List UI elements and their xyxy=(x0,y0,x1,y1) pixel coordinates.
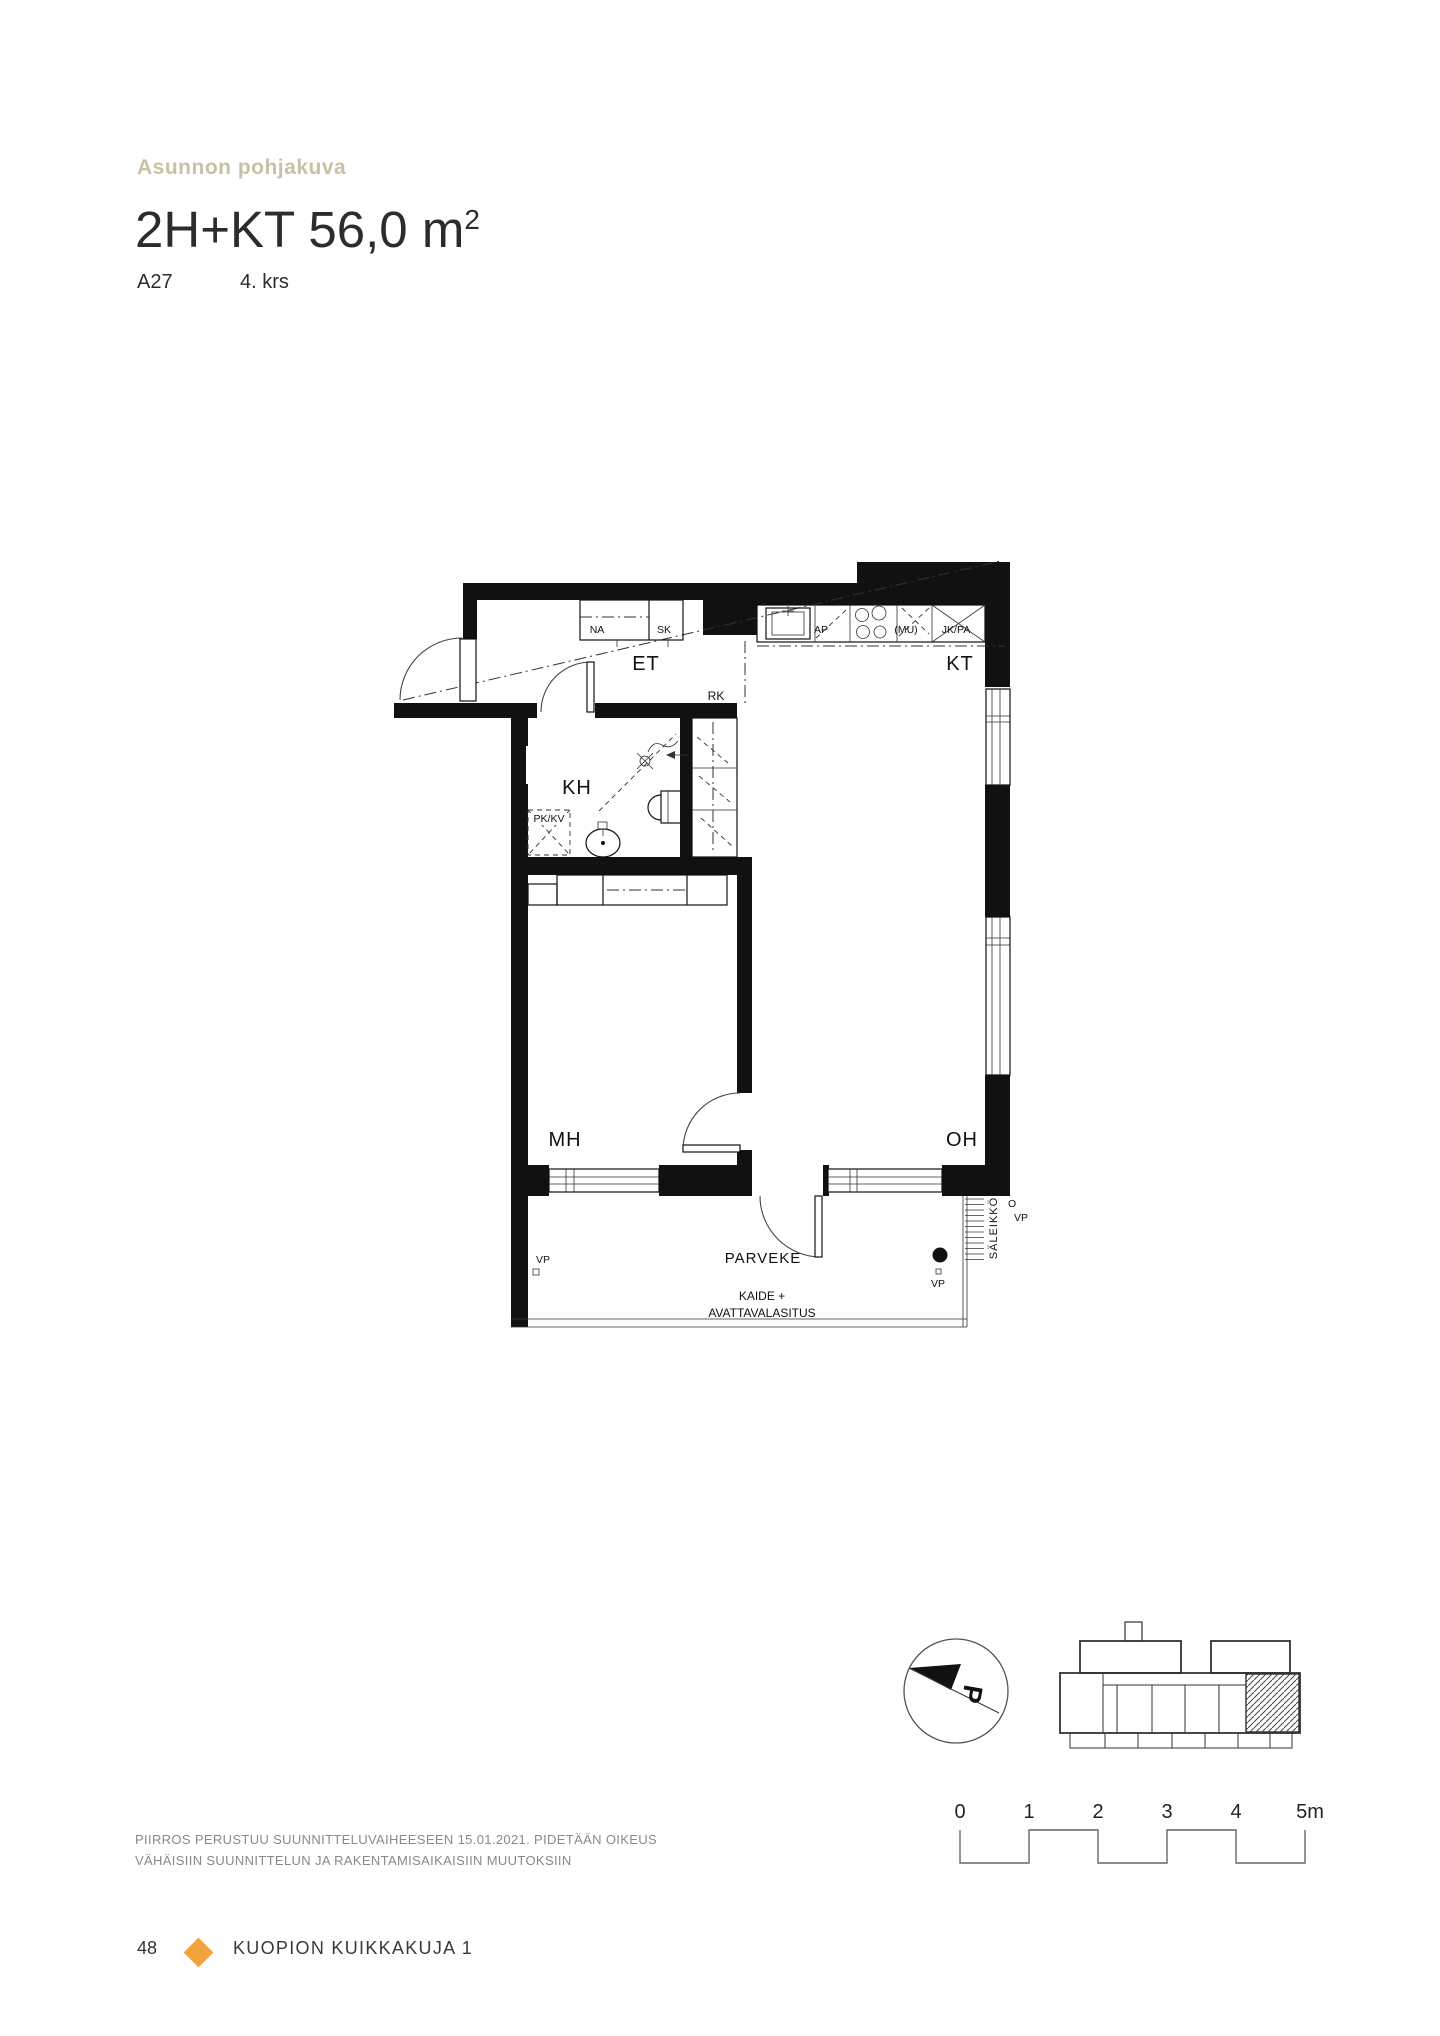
bathroom-fixtures xyxy=(528,741,688,857)
disclaimer-line2: VÄHÄISIIN SUUNNITTELUN JA RAKENTAMISAIKA… xyxy=(135,1850,657,1871)
north-arrow-icon xyxy=(909,1664,961,1690)
walls xyxy=(394,562,1010,1327)
fixture-label-na: NA xyxy=(590,624,605,636)
brochure-page: Asunnon pohjakuva 2H+KT 56,0 m2 A27 4. k… xyxy=(0,0,1440,2036)
fixture-label-rk: RK xyxy=(708,689,725,703)
doors xyxy=(400,638,822,1257)
plan-labels: ET KT KH MH OH PARVEKE KAIDE + AVATTAVAL… xyxy=(534,624,1028,1320)
fixture-label-pkkv: PK/KV xyxy=(534,813,565,825)
balcony-pillar xyxy=(933,1248,948,1263)
room-label-oh: OH xyxy=(946,1129,978,1151)
balcony-note-line2: AVATTAVALASITUS xyxy=(708,1306,815,1320)
fixture-label-ap: AP xyxy=(814,624,828,636)
scale-label-0: 0 xyxy=(954,1801,965,1823)
fixture-label-mu: (MU) xyxy=(894,624,917,636)
disclaimer: PIIRROS PERUSTUU SUUNNITTELUVAIHEESEEN 1… xyxy=(135,1829,657,1871)
project-name: KUOPION KUIKKAKUJA 1 xyxy=(233,1938,473,1959)
bedroom-wardrobes xyxy=(528,875,727,905)
vp-marker-left: VP xyxy=(536,1254,550,1266)
room-label-et: ET xyxy=(632,653,660,675)
page-number: 48 xyxy=(137,1938,157,1959)
scale-label-3: 3 xyxy=(1161,1801,1172,1823)
fixture-label-sk: SK xyxy=(657,624,671,636)
rk-shaft xyxy=(692,718,737,857)
vp-marker-right: VP xyxy=(931,1278,945,1290)
compass: P xyxy=(904,1639,1008,1743)
balcony-note-line1: KAIDE + xyxy=(739,1289,785,1303)
vp-marker-side: VP xyxy=(1014,1212,1028,1224)
wall-niche xyxy=(526,746,531,784)
scale-label-5m: 5m xyxy=(1296,1801,1324,1823)
room-label-kt: KT xyxy=(946,653,974,675)
room-label-parveke: PARVEKE xyxy=(725,1250,801,1267)
scale-label-4: 4 xyxy=(1230,1801,1241,1823)
fixture-label-jkpa: JK/PA xyxy=(942,624,970,636)
scale-bar: 0 1 2 3 4 5m xyxy=(954,1801,1323,1863)
balcony-grille xyxy=(965,1199,984,1260)
room-label-kh: KH xyxy=(562,777,592,799)
scale-label-1: 1 xyxy=(1023,1801,1034,1823)
disclaimer-line1: PIIRROS PERUSTUU SUUNNITTELUVAIHEESEEN 1… xyxy=(135,1829,657,1850)
room-label-mh: MH xyxy=(548,1129,581,1151)
apartment-location-highlight xyxy=(1246,1674,1299,1732)
floor-plan-svg: ET KT KH MH OH PARVEKE KAIDE + AVATTAVAL… xyxy=(0,0,1440,2036)
saleikko-label: SÄLEIKKÖ xyxy=(988,1197,1000,1259)
o-marker: O xyxy=(1008,1198,1016,1210)
scale-label-2: 2 xyxy=(1092,1801,1103,1823)
compass-north-label: P xyxy=(956,1683,989,1706)
windows xyxy=(549,689,1010,1192)
building-key-plan xyxy=(1060,1622,1300,1748)
